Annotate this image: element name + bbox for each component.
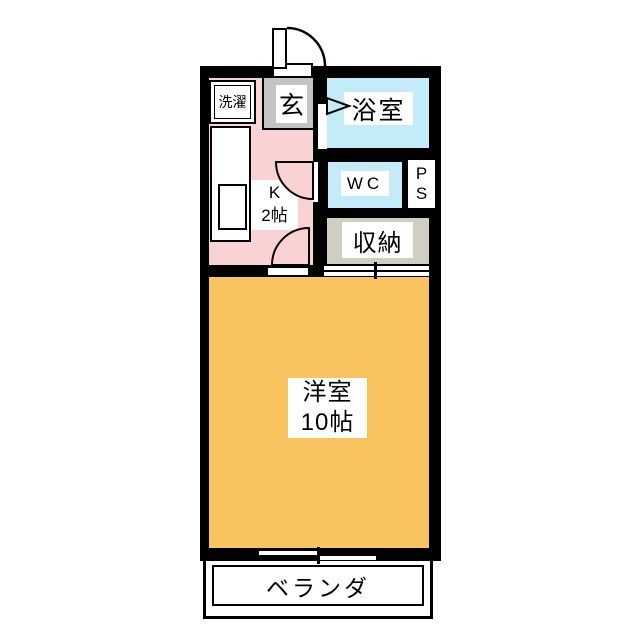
kitchen-label-box: K 2帖 [251, 180, 298, 230]
veranda-railing: ベランダ [212, 565, 424, 606]
kitchen-label-line1: K [269, 182, 280, 205]
balcony-window-bar [318, 555, 377, 561]
washing-machine-area: 洗濯 [209, 80, 256, 124]
toilet-label-box: WC [341, 171, 389, 196]
entry-door-leaf [272, 28, 287, 69]
entrance-label-box: 玄 [276, 85, 307, 123]
entrance-label: 玄 [279, 86, 304, 122]
pipe-space-label-s: S [416, 184, 427, 204]
toilet-door-opening [313, 162, 318, 202]
veranda-label: ベランダ [266, 569, 370, 603]
floorplan-canvas: ベランダ P S 洗濯 [0, 0, 640, 640]
main-room-label-line1: 洋室 [303, 378, 353, 408]
washing-machine-label-box: 洗濯 [214, 85, 251, 119]
floorplan-walls: P S 洗濯 玄 浴室 WC 収納 [200, 66, 441, 561]
bathroom-label: 浴室 [351, 91, 405, 127]
balcony-window-bar [258, 550, 320, 556]
pipe-space-label-p: P [416, 164, 427, 184]
closet-label: 収納 [353, 223, 403, 258]
room-pipe-space: P S [408, 160, 435, 208]
veranda-area: ベランダ [203, 558, 433, 619]
kitchen-sink [218, 184, 247, 230]
closet-label-box: 収納 [342, 222, 413, 258]
kitchen-door-threshold [266, 266, 310, 277]
bathroom-label-box: 浴室 [344, 92, 413, 125]
entry-door-swing-arc [287, 28, 325, 66]
closet-sliding-door-tick [374, 262, 377, 279]
toilet-label: WC [347, 174, 383, 194]
kitchen-label-line2: 2帖 [261, 205, 287, 228]
bathroom-door-opening [318, 104, 327, 149]
main-room-label-line2: 10帖 [301, 408, 355, 438]
main-room-label-box: 洋室 10帖 [288, 378, 367, 438]
balcony-window-tick [317, 547, 320, 564]
laundry-label: 洗濯 [219, 92, 247, 112]
